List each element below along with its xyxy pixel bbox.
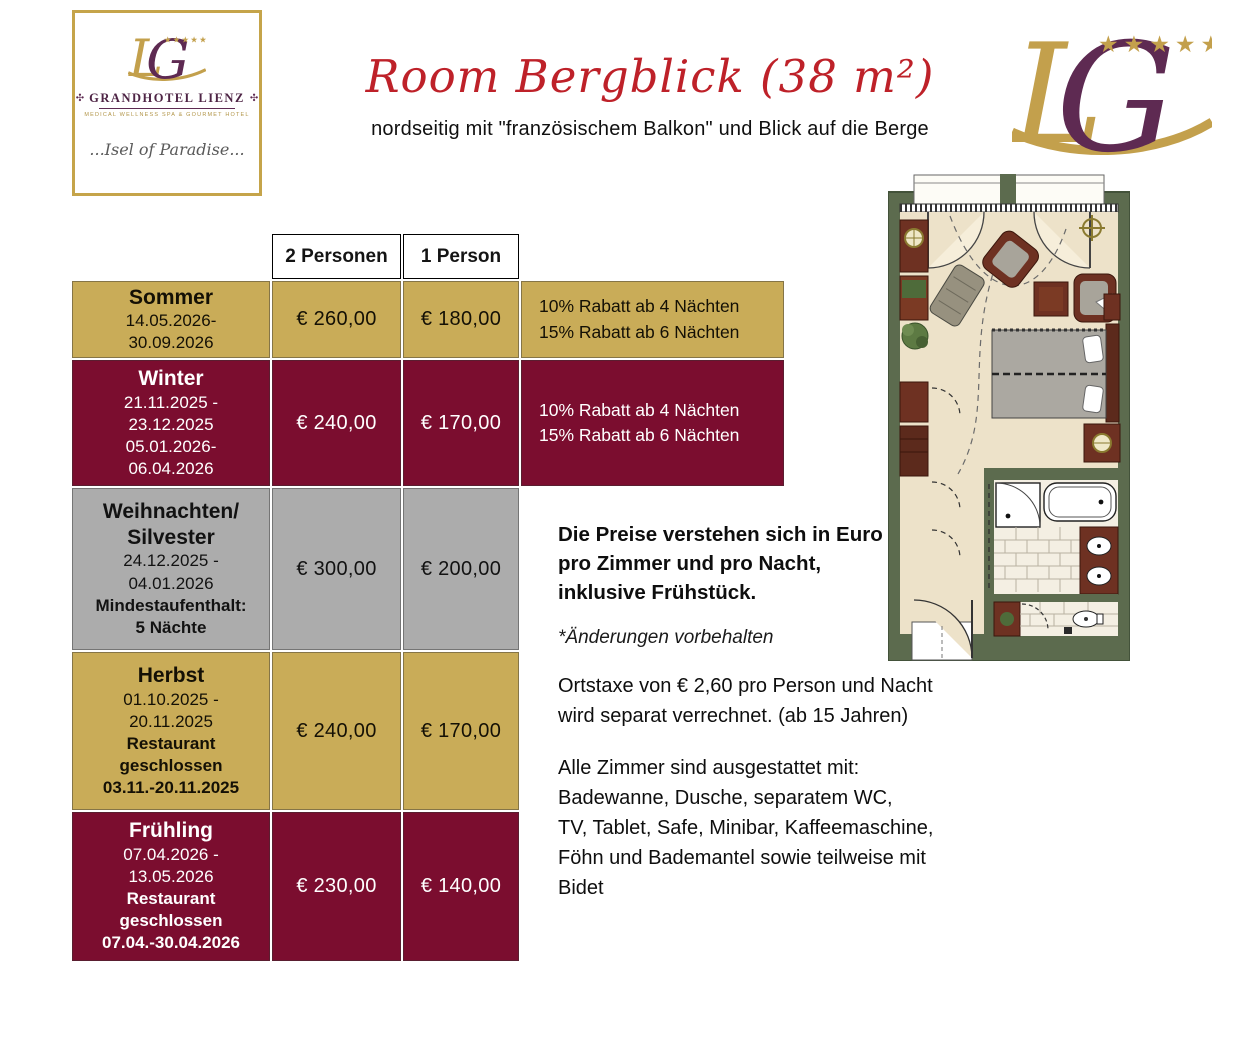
- page-subtitle: nordseitig mit "französischem Balkon" un…: [320, 118, 980, 141]
- price-sheet-page: L G ★★★★★ ✣ GRANDHOTEL LIENZ ✣ MEDICAL W…: [0, 0, 1241, 1064]
- discount-note-sommer: 10% Rabatt ab 4 Nächten 15% Rabatt ab 6 …: [521, 281, 784, 358]
- discount-note-text: 10% Rabatt ab 4 Nächten 15% Rabatt ab 6 …: [539, 294, 739, 345]
- info-block: Die Preise verstehen sich in Euro pro Zi…: [558, 520, 998, 903]
- season-row-winter: Winter21.11.2025 - 23.12.2025 05.01.2026…: [72, 360, 786, 486]
- brand-monogram-icon: L G ★★★★★: [1012, 14, 1212, 176]
- column-header-2-personen: 2 Personen: [272, 234, 401, 279]
- price-2-personen-weihnachten-silvester: € 300,00: [272, 488, 401, 650]
- hotel-tagline: MEDICAL WELLNESS SPA & GOURMET HOTEL: [84, 112, 249, 118]
- ornament-left-icon: ✣: [76, 93, 84, 104]
- price-2-personen-winter: € 240,00: [272, 360, 401, 486]
- table-header-row: 2 Personen 1 Person: [72, 234, 786, 279]
- season-name: Sommer: [129, 285, 213, 311]
- discount-note-winter: 10% Rabatt ab 4 Nächten 15% Rabatt ab 6 …: [521, 360, 784, 486]
- season-dates: 07.04.2026 - 13.05.2026: [123, 844, 218, 888]
- price-1-person-weihnachten-silvester: € 200,00: [403, 488, 519, 650]
- disclaimer: *Änderungen vorbehalten: [558, 627, 998, 649]
- season-footnote: Restaurant geschlossen 03.11.-20.11.2025: [103, 733, 239, 799]
- season-name: Herbst: [138, 663, 205, 689]
- season-name: Weihnachten/ Silvester: [103, 499, 239, 550]
- discount-note-text: 10% Rabatt ab 4 Nächten 15% Rabatt ab 6 …: [539, 398, 739, 449]
- hotel-logo-card: L G ★★★★★ ✣ GRANDHOTEL LIENZ ✣ MEDICAL W…: [72, 10, 262, 196]
- season-row-sommer: Sommer14.05.2026- 30.09.2026€ 260,00€ 18…: [72, 281, 786, 358]
- season-dates: 01.10.2025 - 20.11.2025: [123, 689, 218, 733]
- brand-stars: ★★★★★: [1098, 31, 1212, 57]
- season-cell-fruehling: Frühling07.04.2026 - 13.05.2026Restauran…: [72, 812, 270, 961]
- price-2-personen-sommer: € 260,00: [272, 281, 401, 358]
- price-1-person-winter: € 170,00: [403, 360, 519, 486]
- hotel-name: GRANDHOTEL LIENZ: [89, 91, 245, 106]
- season-name: Winter: [138, 366, 203, 392]
- price-1-person-fruehling: € 140,00: [403, 812, 519, 961]
- season-name: Frühling: [129, 818, 213, 844]
- season-dates: 14.05.2026- 30.09.2026: [126, 310, 217, 354]
- page-title: Room Bergblick (38 m²): [320, 52, 980, 102]
- hotel-monogram-icon: L G ★★★★★: [128, 27, 206, 89]
- hotel-slogan: ...Isel of Paradise...: [89, 140, 244, 159]
- price-2-personen-herbst: € 240,00: [272, 652, 401, 810]
- season-cell-herbst: Herbst01.10.2025 - 20.11.2025Restaurant …: [72, 652, 270, 810]
- season-cell-weihnachten-silvester: Weihnachten/ Silvester24.12.2025 - 04.01…: [72, 488, 270, 650]
- title-block: Room Bergblick (38 m²) nordseitig mit "f…: [320, 52, 980, 141]
- season-dates: 21.11.2025 - 23.12.2025 05.01.2026- 06.0…: [124, 392, 218, 480]
- season-cell-sommer: Sommer14.05.2026- 30.09.2026: [72, 281, 270, 358]
- season-dates: 24.12.2025 - 04.01.2026: [123, 550, 218, 594]
- price-1-person-sommer: € 180,00: [403, 281, 519, 358]
- city-tax-note: Ortstaxe von € 2,60 pro Person und Nacht…: [558, 671, 998, 731]
- price-1-person-herbst: € 170,00: [403, 652, 519, 810]
- price-2-personen-fruehling: € 230,00: [272, 812, 401, 961]
- monogram-stars: ★★★★★: [164, 35, 206, 45]
- ornament-right-icon: ✣: [250, 93, 258, 104]
- amenities-list: Alle Zimmer sind ausgestattet mit: Badew…: [558, 753, 998, 903]
- column-header-1-person: 1 Person: [403, 234, 519, 279]
- logo-divider: [99, 108, 235, 109]
- season-footnote: Mindestaufenthalt: 5 Nächte: [95, 595, 246, 639]
- season-footnote: Restaurant geschlossen 07.04.-30.04.2026: [102, 888, 240, 954]
- pricing-note: Die Preise verstehen sich in Euro pro Zi…: [558, 520, 998, 607]
- season-cell-winter: Winter21.11.2025 - 23.12.2025 05.01.2026…: [72, 360, 270, 486]
